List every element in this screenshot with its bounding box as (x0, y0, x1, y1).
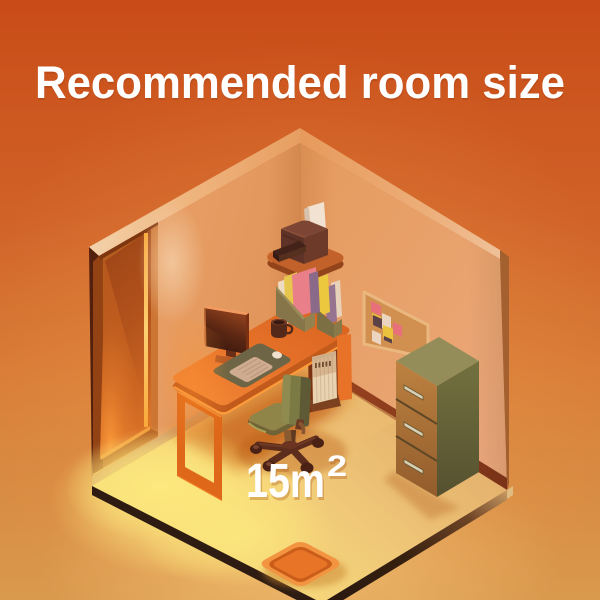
svg-text:Recommended room size: Recommended room size (35, 57, 565, 108)
svg-text:15m: 15m (246, 455, 325, 508)
svg-text:2: 2 (327, 450, 347, 483)
